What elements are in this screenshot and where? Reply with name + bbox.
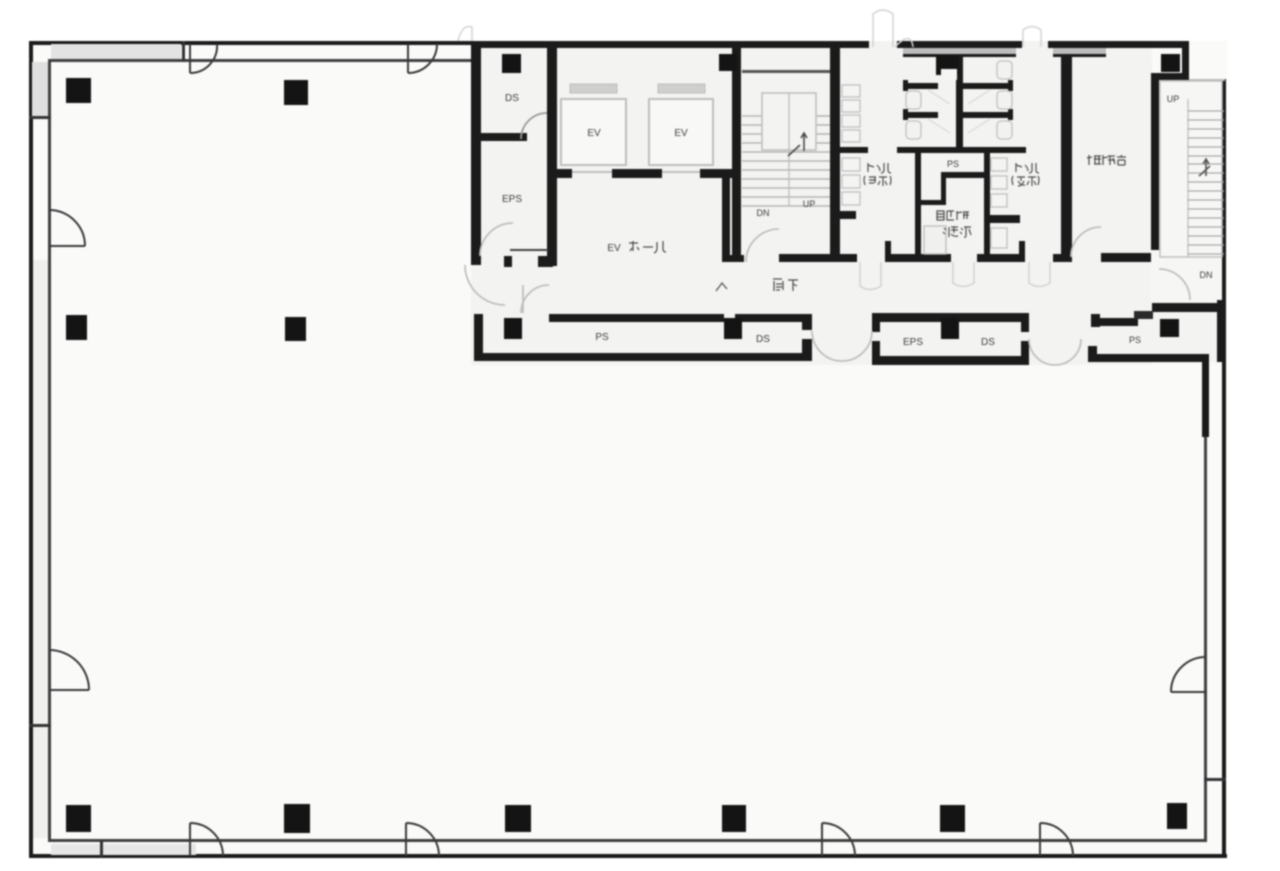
- svg-text:DS: DS: [981, 337, 995, 348]
- svg-text:PS: PS: [595, 332, 609, 343]
- svg-text:EV: EV: [674, 128, 688, 139]
- svg-text:DN: DN: [1200, 270, 1213, 280]
- svg-text:PS: PS: [947, 159, 959, 169]
- svg-text:EPS: EPS: [502, 194, 522, 205]
- svg-text:EV: EV: [587, 128, 601, 139]
- svg-text:UP: UP: [803, 199, 816, 209]
- svg-text:DN: DN: [757, 208, 770, 218]
- svg-text:EV: EV: [607, 243, 621, 254]
- svg-text:PS: PS: [1129, 335, 1141, 345]
- svg-text:UP: UP: [1167, 94, 1180, 104]
- svg-text:EPS: EPS: [903, 337, 923, 348]
- svg-text:DS: DS: [505, 93, 519, 104]
- svg-text:DS: DS: [756, 334, 770, 345]
